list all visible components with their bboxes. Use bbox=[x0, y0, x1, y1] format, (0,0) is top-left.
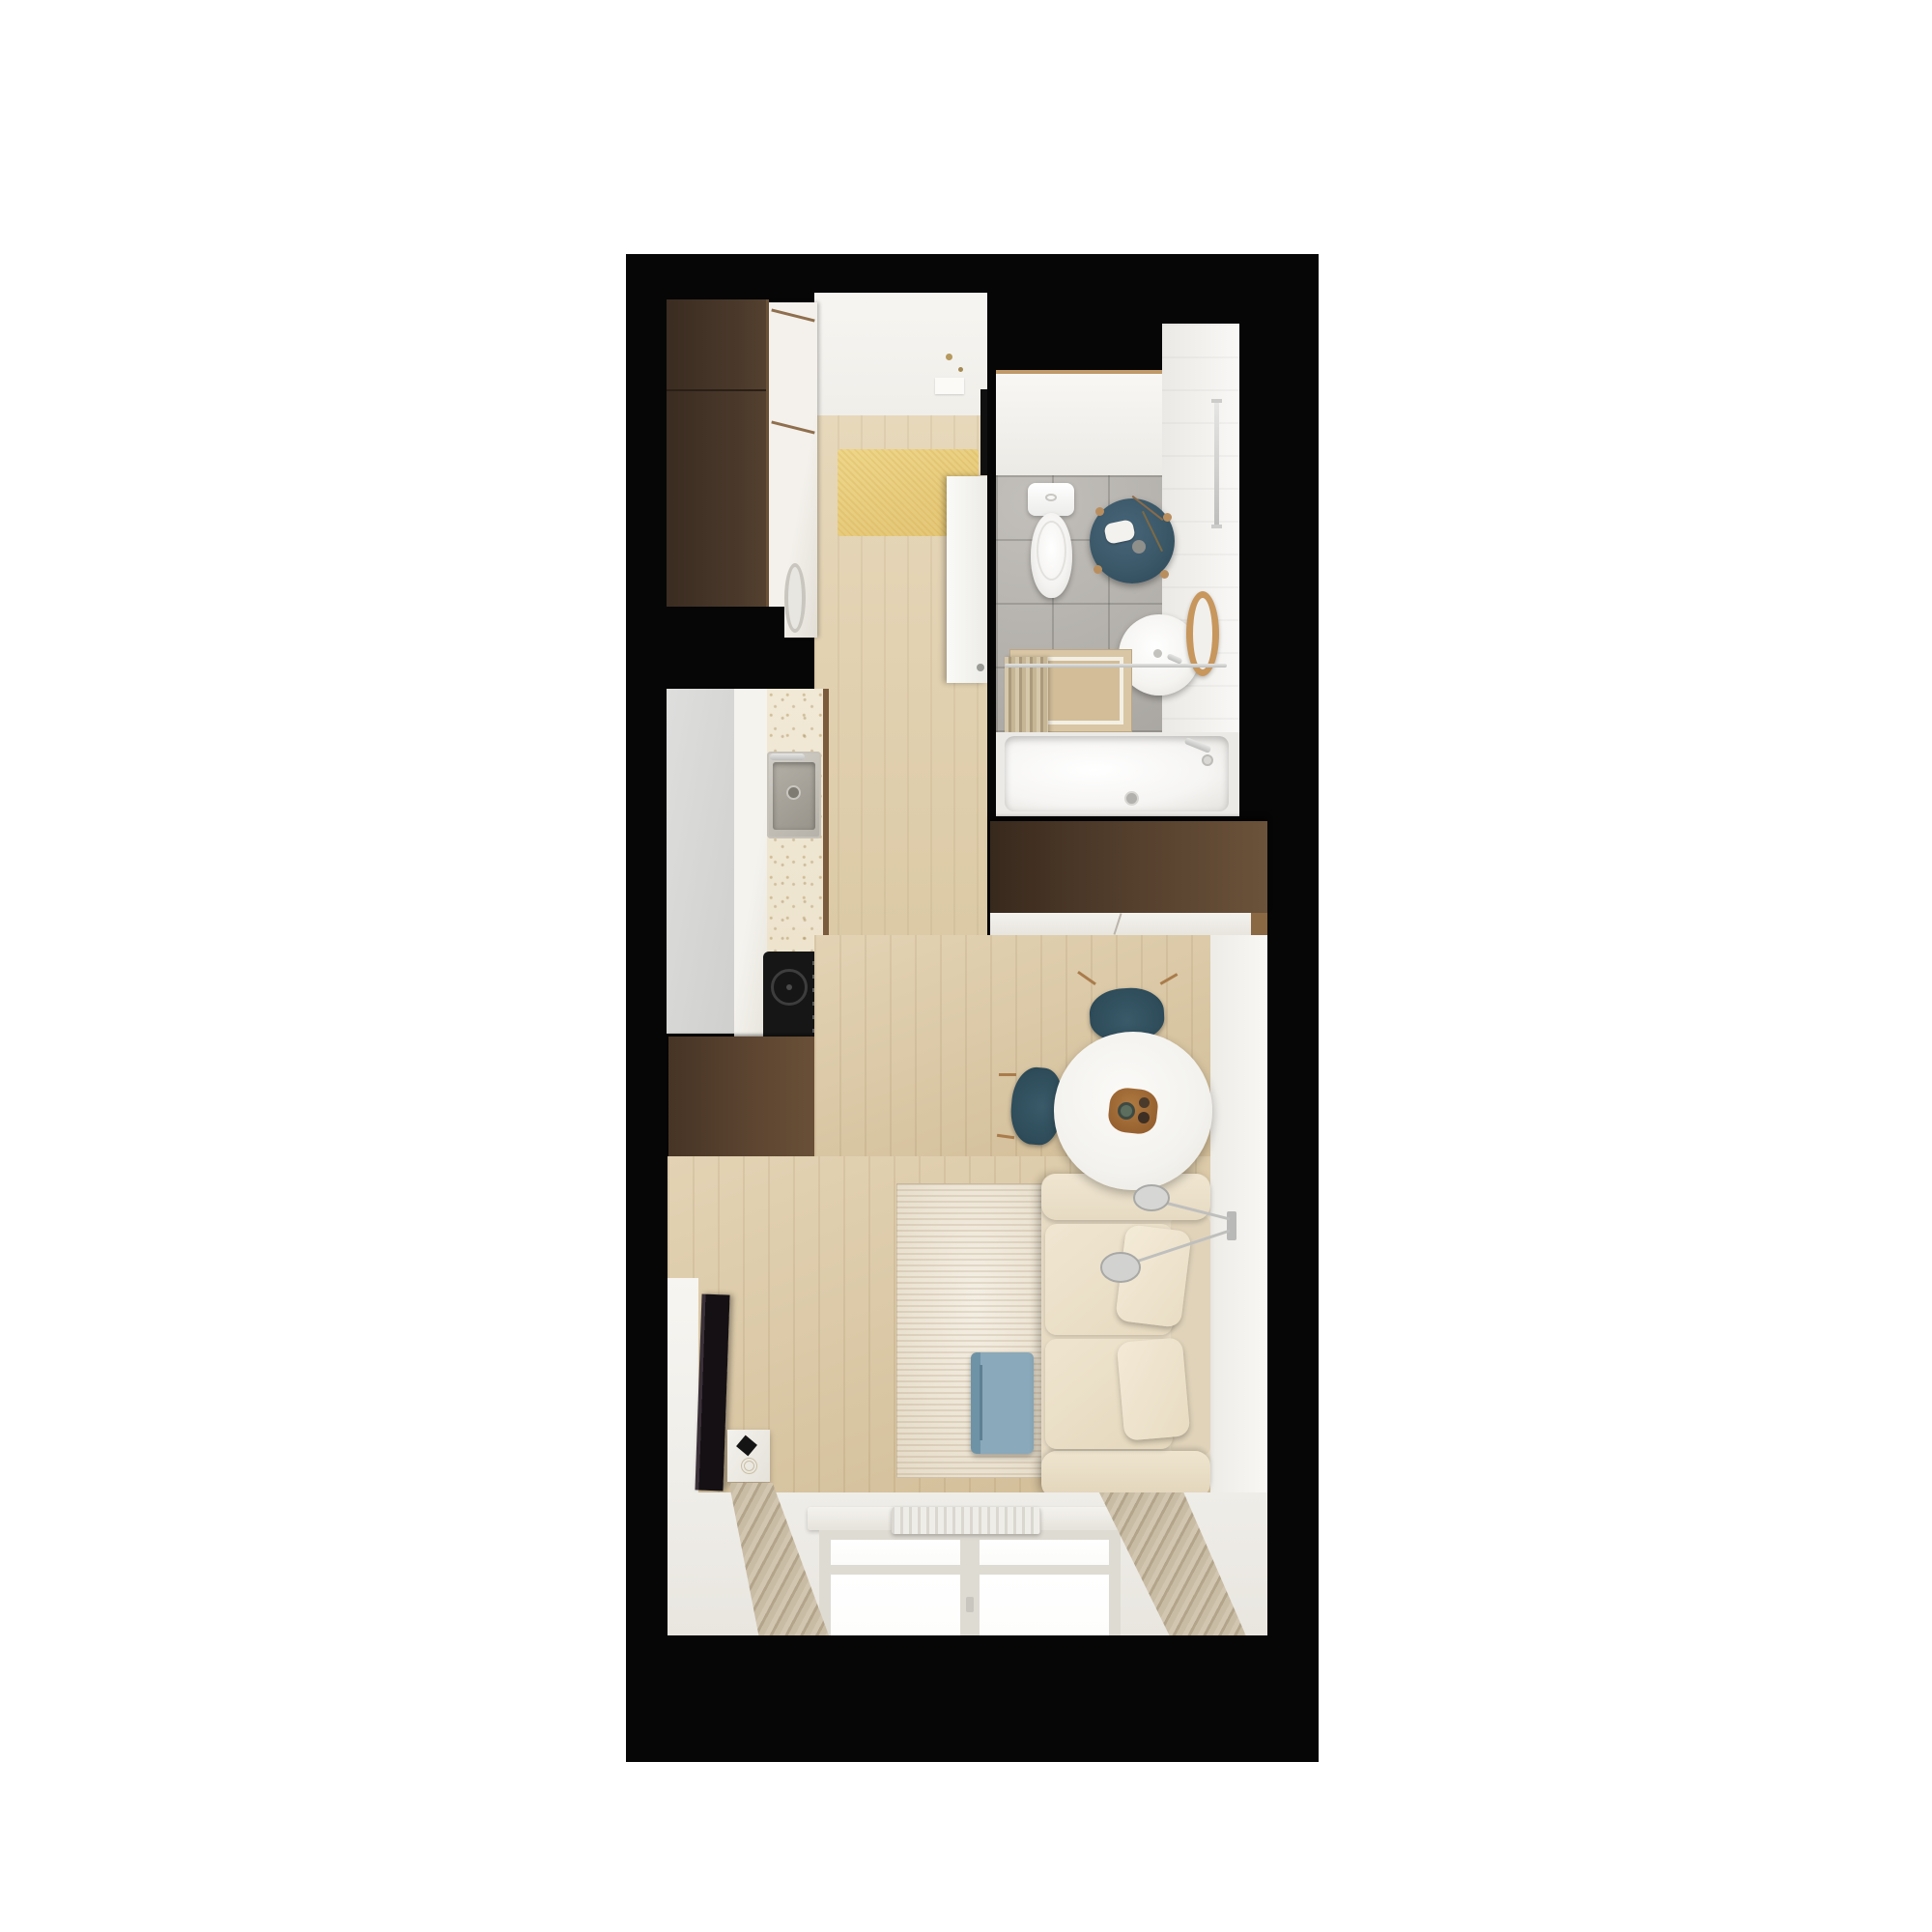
wall-lamp-shade-1 bbox=[1134, 1185, 1169, 1210]
kitchen-base-cabinet bbox=[668, 1037, 824, 1156]
bathtub-shower-head bbox=[1202, 754, 1213, 766]
washbasin-drain bbox=[1153, 649, 1162, 658]
kitchen-faucet bbox=[770, 753, 805, 760]
dining-chair-west-leg-1 bbox=[999, 1073, 1016, 1076]
stool-leg-3 bbox=[1094, 565, 1102, 574]
toilet-flush-button bbox=[1045, 494, 1057, 501]
bathroom-wall-top bbox=[996, 374, 1162, 475]
radiator bbox=[892, 1507, 1040, 1534]
sofa-pillow-2 bbox=[1117, 1337, 1191, 1441]
hall-accent-bar bbox=[980, 389, 987, 475]
wall-lamp bbox=[1099, 1177, 1254, 1293]
toilet-seat-line bbox=[1037, 521, 1066, 581]
left-wall-face bbox=[668, 1278, 698, 1492]
cooktop-burner-dot bbox=[786, 984, 792, 990]
wall-lamp-shade-2 bbox=[1101, 1253, 1140, 1282]
sofa-armrest-bottom bbox=[1041, 1451, 1210, 1497]
blue-side-table-handle bbox=[980, 1365, 982, 1440]
entry-dark-wardrobe bbox=[667, 299, 768, 607]
apartment-plan bbox=[626, 254, 1319, 1762]
wardrobe-doors-end-trim bbox=[1251, 913, 1267, 935]
towel-rail-bracket-top bbox=[1211, 399, 1222, 403]
bathroom-wall-notch bbox=[996, 324, 1162, 372]
window-pane-2 bbox=[980, 1540, 1109, 1565]
stool-leg-4 bbox=[1160, 570, 1169, 579]
wardrobe-below-bathroom bbox=[990, 821, 1267, 913]
tray-jar-small-1 bbox=[1139, 1097, 1150, 1108]
console-decor-spiral bbox=[741, 1458, 757, 1474]
towel-rail bbox=[1214, 401, 1219, 526]
washing-machine-door bbox=[784, 563, 806, 633]
stool-leg-1 bbox=[1095, 507, 1104, 516]
wall-lamp-arm-2 bbox=[1124, 1231, 1230, 1265]
bathroom-door-leaf bbox=[947, 476, 987, 683]
kitchen-drain bbox=[788, 787, 799, 798]
entrance-door-lock bbox=[958, 367, 963, 372]
floorplan-canvas bbox=[0, 0, 1932, 1932]
entrance-door-knob bbox=[946, 354, 952, 360]
stool-pot bbox=[1132, 540, 1146, 554]
fridge-tall-unit bbox=[667, 689, 734, 1034]
window-pane-1 bbox=[831, 1540, 960, 1565]
bathroom-door-handle bbox=[977, 664, 984, 671]
wall-notch-left bbox=[626, 607, 784, 694]
shower-curtain-rail bbox=[1005, 664, 1227, 668]
shower-curtain bbox=[1005, 657, 1048, 736]
wardrobe-divider bbox=[667, 389, 768, 391]
window-handle bbox=[966, 1597, 974, 1612]
towel-rail-bracket-bottom bbox=[1211, 525, 1222, 528]
kitchen-cabinet-fronts bbox=[734, 689, 767, 1048]
window-pane-3 bbox=[831, 1575, 960, 1635]
wall-lamp-mount bbox=[1227, 1211, 1236, 1240]
entrance-door-plate bbox=[935, 378, 964, 394]
window-pane-4 bbox=[980, 1575, 1109, 1635]
stool-leg-2 bbox=[1163, 513, 1172, 522]
bathtub-drain bbox=[1126, 793, 1137, 804]
tray-jar-small-2 bbox=[1138, 1112, 1150, 1123]
tray-jar-large bbox=[1118, 1102, 1135, 1120]
